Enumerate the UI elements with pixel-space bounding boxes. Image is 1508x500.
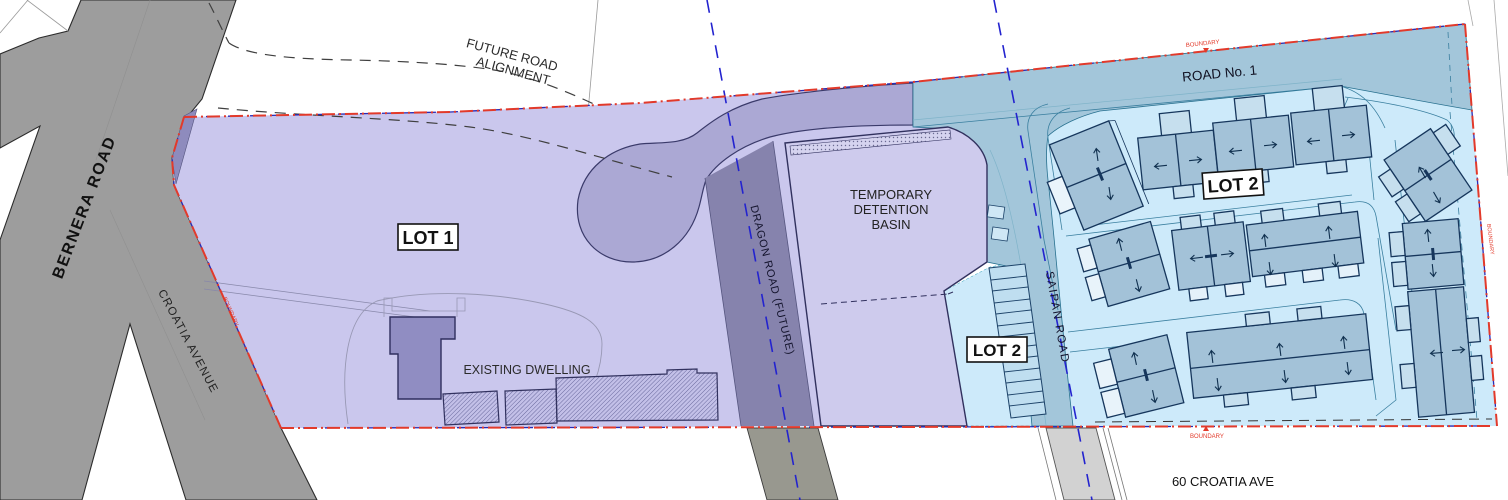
svg-text:60 CROATIA AVE: 60 CROATIA AVE [1172,474,1274,489]
svg-text:DETENTION: DETENTION [853,202,928,217]
svg-text:TEMPORARY: TEMPORARY [850,187,932,202]
svg-text:LOT 2: LOT 2 [973,341,1021,360]
svg-text:BOUNDARY: BOUNDARY [1190,434,1224,440]
svg-text:LOT 1: LOT 1 [402,228,453,248]
svg-text:LOT 2: LOT 2 [1207,173,1259,197]
svg-text:EXISTING DWELLING: EXISTING DWELLING [463,363,590,377]
svg-text:BASIN: BASIN [871,217,910,232]
